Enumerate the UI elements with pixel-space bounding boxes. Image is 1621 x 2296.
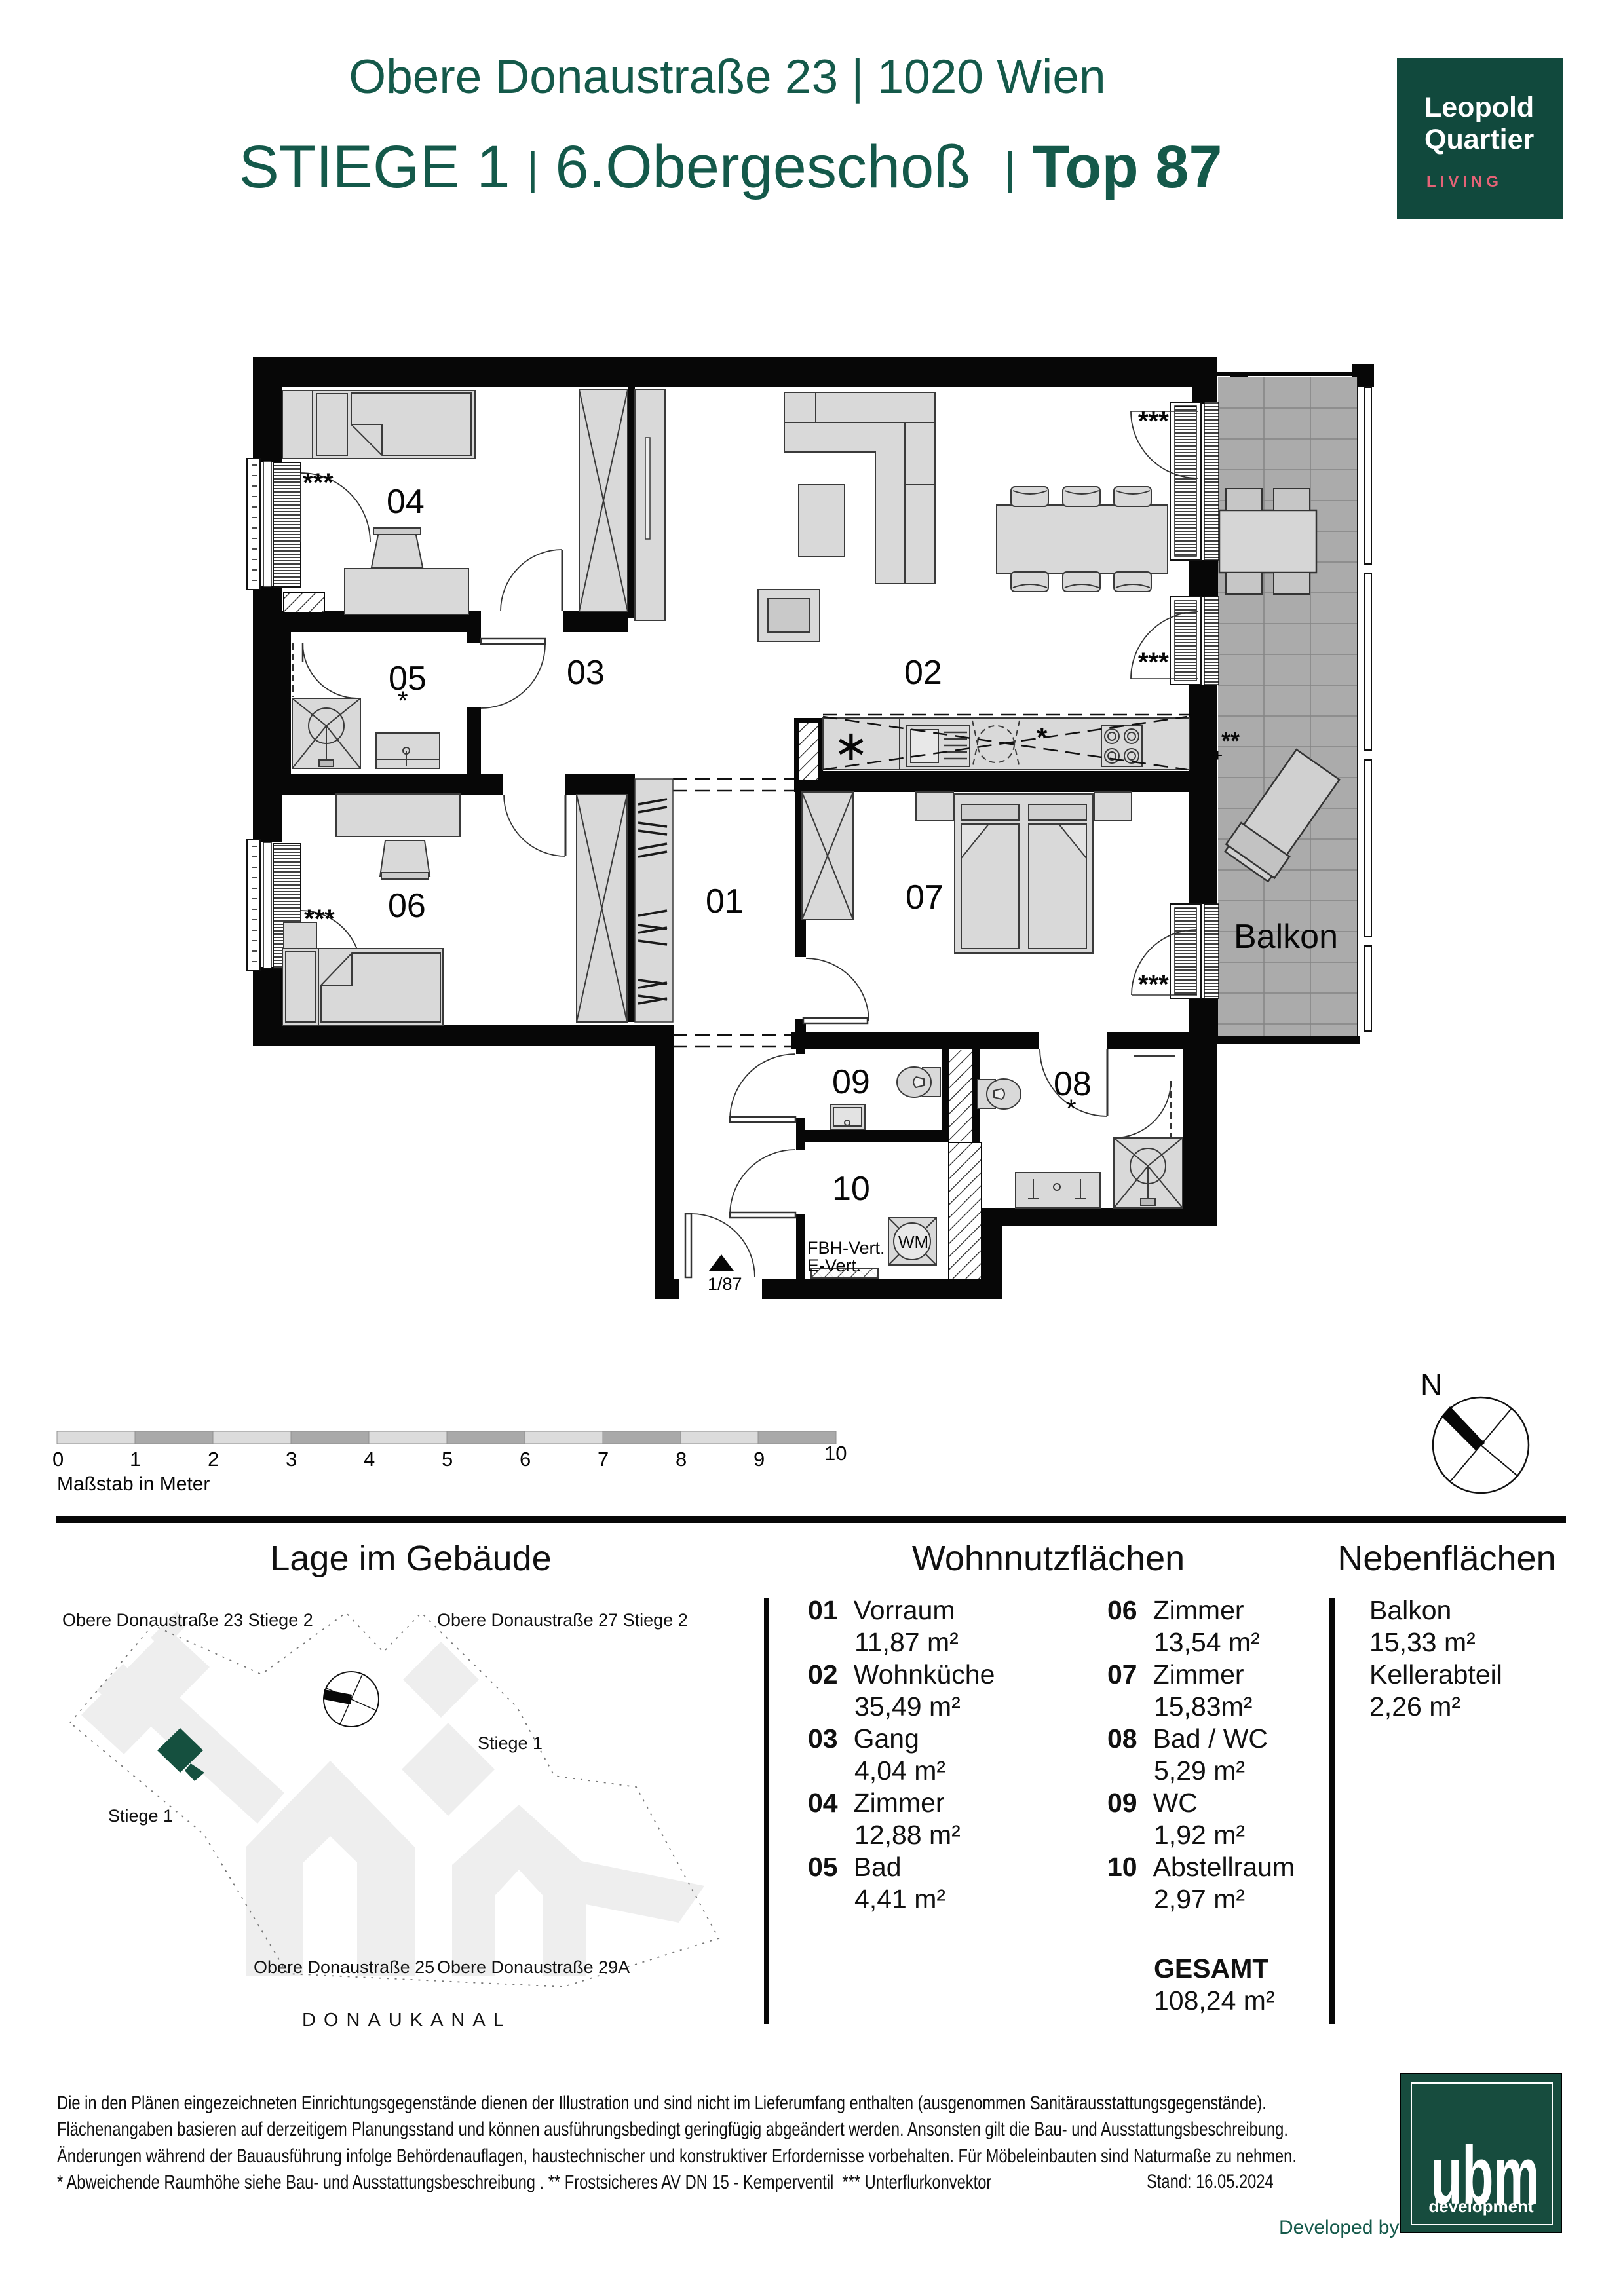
svg-text:09: 09 (832, 1063, 870, 1101)
svg-text:8: 8 (676, 1448, 687, 1471)
svg-text:10: 10 (832, 1170, 870, 1208)
svg-text:1/87: 1/87 (708, 1274, 742, 1294)
svg-text:03: 03 (567, 654, 605, 692)
svg-text:E-Vert.: E-Vert. (807, 1256, 862, 1275)
svg-text:3: 3 (286, 1448, 297, 1471)
svg-text:10: 10 (824, 1442, 847, 1465)
svg-text:N: N (1421, 1368, 1442, 1402)
svg-text:5: 5 (442, 1448, 453, 1471)
svg-text:FBH-Vert.: FBH-Vert. (807, 1238, 885, 1258)
svg-text:4: 4 (364, 1448, 375, 1471)
svg-text:WM: WM (898, 1232, 928, 1252)
svg-text:Maßstab in Meter: Maßstab in Meter (57, 1473, 210, 1495)
svg-text:***: *** (1138, 970, 1169, 999)
svg-text:7: 7 (598, 1448, 609, 1471)
svg-text:**: ** (1221, 727, 1240, 754)
svg-text:06: 06 (388, 887, 426, 925)
svg-text:+: + (1213, 745, 1223, 765)
svg-text:*: * (1037, 722, 1048, 753)
svg-text:04: 04 (387, 483, 425, 521)
svg-text:01: 01 (706, 882, 744, 920)
svg-text:Balkon: Balkon (1234, 918, 1338, 956)
svg-text:2: 2 (208, 1448, 219, 1471)
svg-text:07: 07 (906, 878, 944, 916)
svg-text:***: *** (1138, 407, 1169, 436)
svg-text:9: 9 (753, 1448, 765, 1471)
svg-text:***: *** (1138, 648, 1169, 677)
svg-text:6: 6 (520, 1448, 531, 1471)
svg-text:*: * (1066, 1095, 1077, 1123)
svg-text:*: * (398, 687, 408, 715)
svg-text:∗: ∗ (833, 722, 869, 769)
svg-text:1: 1 (130, 1448, 141, 1471)
svg-text:***: *** (303, 468, 334, 497)
svg-text:0: 0 (52, 1448, 64, 1471)
svg-text:02: 02 (904, 654, 942, 692)
